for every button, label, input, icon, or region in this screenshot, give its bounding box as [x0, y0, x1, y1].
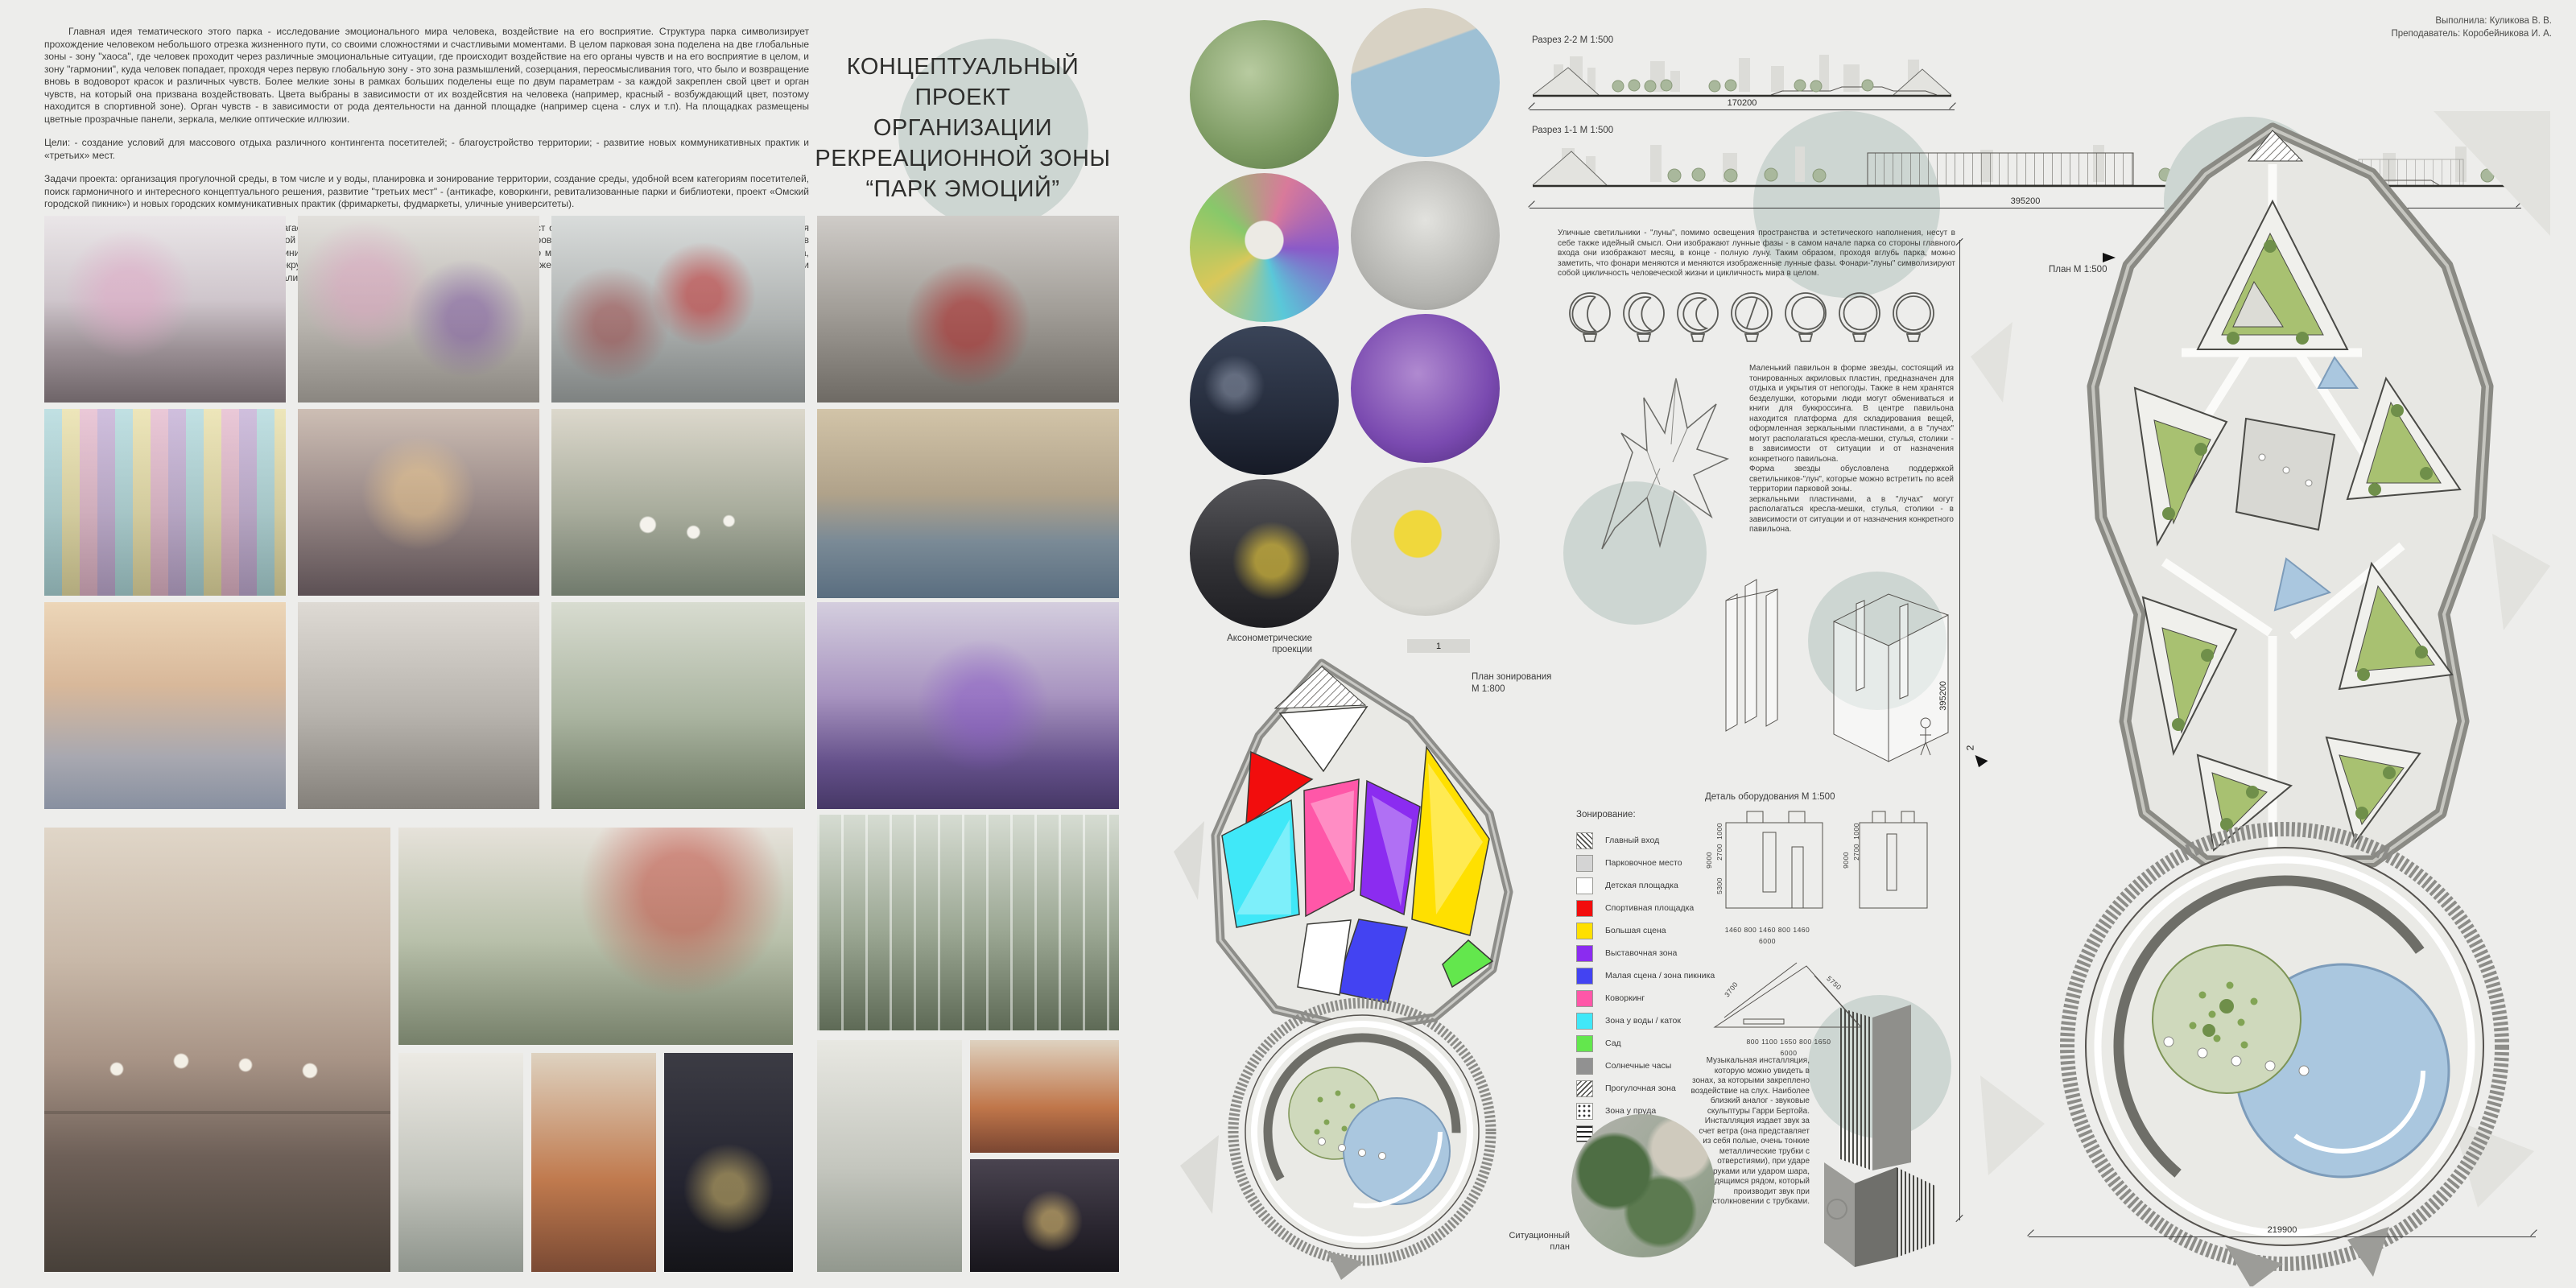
situational-plan-label: Ситуационный план: [1489, 1230, 1570, 1253]
title-line-1: КОНЦЕПТУАЛЬНЫЙ ПРОЕКТ: [805, 52, 1121, 113]
master-plan-vertical-dimension-line: [1959, 240, 1960, 1220]
legend-label: Солнечные часы: [1605, 1061, 1671, 1071]
moon-lamp-icon-crescent-1: [1568, 291, 1612, 343]
dim-bottom-total: 6000: [1705, 937, 1830, 945]
intro-paragraph-concept: Главная идея тематического этого парка -…: [44, 26, 809, 126]
swatch-small-stage: [1576, 968, 1593, 985]
zoning-label-line2: М 1:800: [1472, 683, 1551, 696]
zoning-label-line1: План зонирования: [1472, 671, 1551, 683]
zoning-plan-label: План зонирования М 1:800: [1472, 671, 1551, 696]
legend-label: Парковочное место: [1605, 858, 1682, 868]
render-glass-pavilion: [298, 409, 539, 596]
lamps-paragraph: Уличные светильники - "луны", помимо осв…: [1558, 229, 1955, 279]
page-title: КОНЦЕПТУАЛЬНЫЙ ПРОЕКТ ОРГАНИЗАЦИИ РЕКРЕА…: [805, 52, 1121, 204]
dimension-value: 170200: [1728, 98, 1757, 108]
moon-lamp-icon-half: [1730, 291, 1773, 343]
render-white-pavilion: [398, 1053, 523, 1272]
axon-vignette-violet-pavilions: [1351, 314, 1500, 463]
pavilion-paragraph-3: зеркальными пластинами, а в "лучах" могу…: [1749, 495, 1954, 535]
render-red-frames: [551, 216, 805, 402]
sit-label-line2: план: [1489, 1241, 1570, 1253]
dimension-line: [2029, 1236, 2536, 1237]
render-red-art-objects: [817, 216, 1119, 402]
pavilion-description: Маленький павильон в форме звезды, состо…: [1749, 364, 1954, 535]
swatch-exhibition: [1576, 945, 1593, 962]
sound-sculpture-sketch: [1816, 1001, 1945, 1283]
embankment-left: [1533, 151, 1607, 185]
render-pond-spheres: [551, 409, 805, 596]
swatch-children: [1576, 877, 1593, 894]
moon-lamp-icon-gibbous-2: [1838, 291, 1881, 343]
star-outline: [1602, 378, 1728, 549]
equipment-detail-label: Деталь оборудования М 1:500: [1705, 792, 1835, 802]
dimension-value: 219900: [2268, 1225, 2297, 1235]
presentation-board: Главная идея тематического этого парка -…: [0, 0, 2576, 1288]
render-night-scene: [664, 1053, 793, 1272]
master-plan-horizontal-dimension: 219900: [2029, 1225, 2536, 1237]
plaza-plot: [2236, 419, 2334, 530]
render-playground: [44, 216, 286, 402]
satellite-image: [1571, 1114, 1715, 1257]
dimension-line: [1529, 109, 1955, 110]
render-color-panels: [44, 409, 286, 596]
sundial-garden: [2153, 945, 2301, 1093]
swatch-main-entrance: [1576, 832, 1593, 849]
axon-vignette-green-park: [1190, 20, 1339, 169]
render-autumn-trees: [531, 1053, 656, 1272]
legend-label: Большая сцена: [1605, 926, 1666, 935]
title-line-2: ОРГАНИЗАЦИИ: [805, 113, 1121, 143]
axon-vignette-yellow-hexagons: [1351, 467, 1500, 616]
equipment-elevation-b: 1000 2700 9000: [1842, 810, 1938, 953]
moon-lamp-icon-gibbous-1: [1784, 291, 1827, 343]
swatch-coworking: [1576, 990, 1593, 1007]
equipment-elevation-a: 1000 2700 5300 9000 1460 800 1460 800 14…: [1705, 810, 1830, 953]
dim-5300: 5300: [1715, 877, 1724, 894]
render-white-columns: [298, 216, 539, 402]
master-plan-vertical-dimension: 395200: [1938, 681, 1948, 711]
axon-vignette-pond-boats: [1351, 8, 1500, 157]
swatch-walking-zone: [1576, 1080, 1593, 1097]
tube-panel: [1897, 1167, 1937, 1257]
render-evening-lights: [970, 1159, 1119, 1272]
render-waterfront: [817, 409, 1119, 598]
render-purple-interior: [817, 602, 1119, 809]
decor-triangle: [1180, 1135, 1219, 1214]
dim-2700: 2700: [1715, 844, 1724, 861]
master-plan-drawing: [1971, 111, 2550, 1286]
swatch-big-stage: [1576, 923, 1593, 939]
axon-vignette-dark-stage: [1190, 479, 1339, 628]
panel-group-left: [1726, 580, 1777, 731]
tube-panel: [1840, 1008, 1872, 1170]
legend-label: Сад: [1605, 1038, 1621, 1048]
moon-lamp-row: [1568, 291, 1935, 343]
gray-panel: [1872, 1005, 1911, 1170]
swatch-sundial: [1576, 1058, 1593, 1075]
title-line-4: “ПАРК ЭМОЦИЙ”: [805, 174, 1121, 204]
star-inner-lines: [1647, 378, 1687, 497]
render-swan-lake: [44, 602, 286, 809]
render-forest-poles: [817, 815, 1119, 1030]
panel-group-right: [1834, 594, 1948, 762]
axon-vignette-evening-crowd: [1190, 326, 1339, 475]
legend-label: Спортивная площадка: [1605, 903, 1694, 913]
pavilion-paragraph-2: Форма звезды обусловлена поддержкой свет…: [1749, 464, 1954, 495]
sit-label-line1: Ситуационный: [1489, 1230, 1570, 1241]
swatch-parking: [1576, 855, 1593, 872]
render-round-pavilion: [817, 1040, 962, 1272]
legend-label: Прогулочная зона: [1605, 1084, 1676, 1093]
render-park-path: [398, 828, 793, 1045]
lamps-description: Уличные светильники - "луны", помимо осв…: [1558, 229, 1955, 279]
dim-9000: 9000: [1705, 852, 1713, 869]
dark-panel: [1855, 1167, 1897, 1267]
dim-9000: 9000: [1842, 852, 1850, 869]
legend-label: Выставочная зона: [1605, 948, 1677, 958]
dim-bottom-row: 1460 800 1460 800 1460: [1705, 926, 1830, 934]
moon-lamp-icon-crescent-2: [1622, 291, 1666, 343]
swatch-garden: [1576, 1035, 1593, 1052]
mirror-panels-sketch: [1721, 559, 1963, 774]
star-pavilion-sketch: [1570, 356, 1743, 561]
section-2-2-dimension: 170200: [1529, 98, 1955, 110]
swatch-pond-zone: [1576, 1103, 1593, 1120]
render-terraces-canopy: [298, 602, 539, 809]
decor-triangle: [1174, 821, 1204, 900]
zoning-plan-drawing: [1169, 649, 1555, 1285]
title-line-3: РЕКРЕАЦИОННОЙ ЗОНЫ: [805, 143, 1121, 174]
legend-label: Зона у воды / каток: [1605, 1016, 1681, 1026]
legend-label: Главный вход: [1605, 836, 1659, 845]
dim-1000: 1000: [1852, 823, 1860, 840]
axon-vignette-color-funnel: [1190, 173, 1339, 322]
plaza-exit-left: [2225, 1245, 2283, 1286]
section-1-1-label: Разрез 1-1 М 1:500: [1532, 126, 1613, 135]
credits-author: Выполнила: Куликова В. В.: [2246, 14, 2552, 27]
render-green-steps: [551, 602, 805, 809]
section-2-2-drawing: [1529, 50, 1955, 103]
intro-paragraph-tasks: Задачи проекта: организация прогулочной …: [44, 173, 809, 211]
pavilion-paragraph-1: Маленький павильон в форме звезды, состо…: [1749, 364, 1954, 464]
moon-lamp-icon-crescent-3: [1676, 291, 1719, 343]
section-2-2-label: Разрез 2-2 М 1:500: [1532, 35, 1613, 45]
render-amphitheater-panorama: [44, 828, 390, 1272]
legend-label: Малая сцена / зона пикника: [1605, 971, 1715, 980]
axon-label-line1: Аксонометрические: [1171, 633, 1312, 644]
plaza-exit: [1327, 1251, 1364, 1280]
axon-vignette-gray-plaza: [1351, 161, 1500, 310]
credits-teacher: Преподаватель: Коробейникова И. А.: [2246, 27, 2552, 40]
swatch-sport: [1576, 900, 1593, 917]
render-autumn-alley: [970, 1040, 1119, 1153]
dim-2700: 2700: [1852, 844, 1860, 861]
moon-lamp-icon-full: [1892, 291, 1935, 343]
legend-label: Коворкинг: [1605, 993, 1645, 1003]
intro-paragraph-goals: Цели: - создание условий для массового о…: [44, 137, 809, 162]
credits-block: Выполнила: Куликова В. В. Преподаватель:…: [2246, 14, 2552, 40]
dim-1000: 1000: [1715, 823, 1724, 840]
elevation-drawing: [1705, 810, 1830, 916]
swatch-water-rink: [1576, 1013, 1593, 1030]
legend-label: Детская площадка: [1605, 881, 1678, 890]
